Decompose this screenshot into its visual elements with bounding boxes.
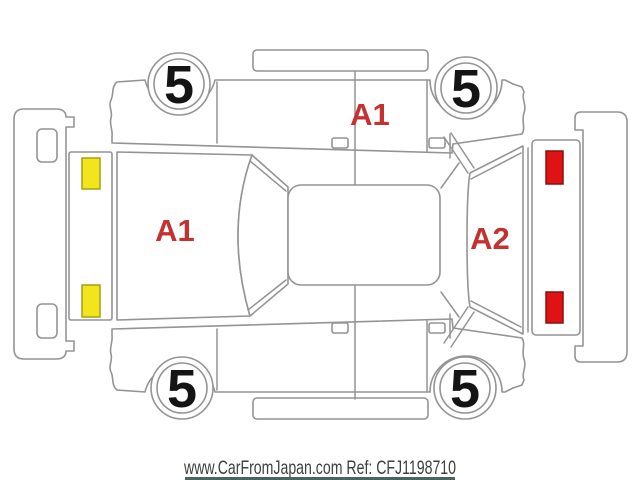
wheel-grade-badge-bottom-right: 5 bbox=[434, 357, 496, 419]
watermark-caption: www.CarFromJapan.com Ref: CFJ1198710 bbox=[183, 457, 456, 479]
roof-panel bbox=[288, 185, 440, 285]
door-handle-front-bottom bbox=[332, 323, 348, 333]
front-bumper-cutout-bottom bbox=[37, 304, 57, 338]
door-handle-front-top bbox=[332, 138, 348, 148]
door-handle-rear-bottom bbox=[429, 323, 445, 333]
wheel-grade-text: 5 bbox=[167, 359, 197, 419]
wheel-grade-text: 5 bbox=[451, 59, 481, 119]
windshield bbox=[238, 155, 288, 316]
wheel-grade-badge-bottom-left: 5 bbox=[151, 357, 213, 419]
rocker-sill-top bbox=[253, 50, 428, 71]
car-damage-diagram-svg: 5 5 5 5 A1 A1 A2 www.CarFromJapan.com Re… bbox=[0, 0, 640, 480]
wheel-grade-text: 5 bbox=[450, 359, 480, 419]
taillight-top bbox=[546, 151, 563, 184]
rear-bumper bbox=[575, 112, 627, 362]
damage-code-side-doors: A1 bbox=[350, 97, 390, 132]
headlight-top bbox=[82, 158, 100, 189]
wheel-grade-badge-top-left: 5 bbox=[148, 53, 210, 115]
headlight-bottom bbox=[82, 285, 100, 317]
rocker-sill-bottom bbox=[253, 398, 428, 419]
door-handle-rear-top bbox=[429, 138, 445, 148]
damage-code-rear-gate: A2 bbox=[470, 221, 510, 256]
damage-code-hood: A1 bbox=[155, 213, 195, 248]
wheel-grade-badge-top-right: 5 bbox=[435, 57, 497, 119]
taillight-bottom bbox=[546, 292, 563, 323]
c-pillar-top-3 bbox=[441, 163, 459, 188]
auction-sheet-damage-diagram: 5 5 5 5 A1 A1 A2 www.CarFromJapan.com Re… bbox=[0, 0, 640, 480]
wheel-grade-text: 5 bbox=[164, 55, 194, 115]
front-bumper-cutout-top bbox=[37, 129, 57, 162]
